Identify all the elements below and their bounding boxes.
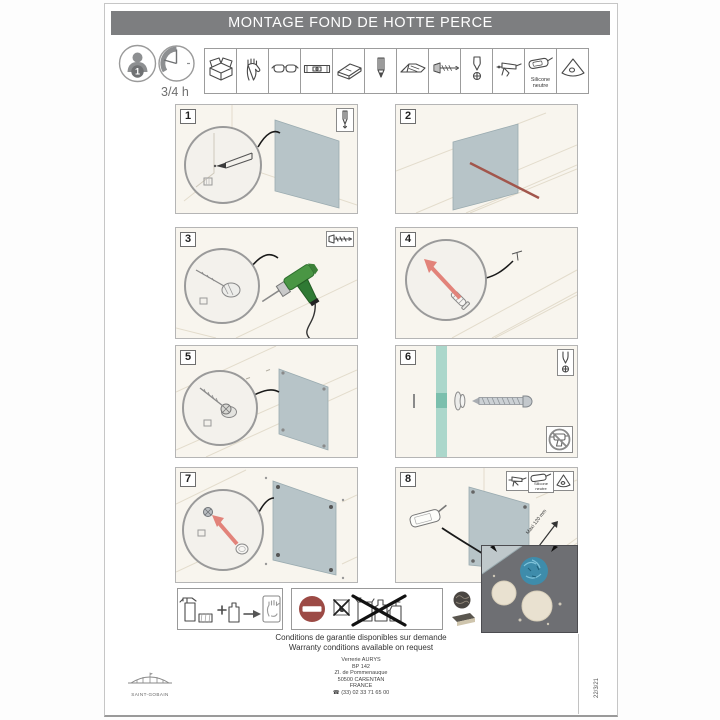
company-street: ZI. de Pommenauque xyxy=(105,670,617,677)
company-phone-line: ☎ (33) 02 33 71 65 00 xyxy=(105,690,617,697)
drill-bit-badge-icon xyxy=(326,231,354,247)
bottle-icon xyxy=(229,603,239,622)
pencil-icon xyxy=(367,55,395,88)
step-panel-4: 4 xyxy=(395,227,578,339)
step2-scene-mark-panel xyxy=(396,105,577,213)
drill-bit-icon xyxy=(431,55,459,88)
screwdriver-badge-icon xyxy=(557,349,574,376)
step-number: 5 xyxy=(180,350,196,365)
step8-tool-badges: Silicone neutre xyxy=(507,471,574,493)
step-panel-7: 7 xyxy=(175,467,358,583)
clock-icon xyxy=(157,44,196,88)
step-number: 8 xyxy=(400,472,416,487)
steel-wool-icon xyxy=(454,592,471,609)
company-city: 50500 CARENTAN xyxy=(105,677,617,684)
company-name: Verrerie AURYS xyxy=(105,657,617,664)
tool-cell xyxy=(204,48,237,94)
company-po-box: BP 142 xyxy=(105,664,617,671)
scouring-pad-icon xyxy=(452,613,475,626)
smoothing-triangle-icon xyxy=(559,55,587,88)
safety-glasses-icon xyxy=(271,55,299,88)
people-count: 1 xyxy=(135,67,140,77)
soft-cloth-hand-icon xyxy=(263,596,280,622)
tool-cell: Silicone neutre xyxy=(524,48,557,94)
one-person-icon: 1 xyxy=(118,44,157,88)
company-country: FRANCE xyxy=(105,683,617,690)
step-number: 7 xyxy=(180,472,196,487)
brand-name: SAINT-GOBAIN xyxy=(119,692,181,697)
step-number: 3 xyxy=(180,232,196,247)
flammable-crossed-icon xyxy=(334,600,349,615)
instruction-sheet: MONTAGE FOND DE HOTTE PERCE 1 3/4 h xyxy=(104,3,618,717)
tool-cell xyxy=(492,48,525,94)
abrasive-pads-forbidden xyxy=(449,589,477,631)
spirit-level-icon xyxy=(303,55,331,88)
phone-number: (33) 02 33 71 65 00 xyxy=(341,690,389,696)
step4-scene-insert-anchor xyxy=(396,228,577,338)
screwdriver-bit-icon xyxy=(463,55,491,88)
step-panel-6: 6 xyxy=(395,345,578,458)
step-panel-3: 3 xyxy=(175,227,358,339)
bridge-icon xyxy=(126,670,174,687)
title-bar: MONTAGE FOND DE HOTTE PERCE xyxy=(111,11,610,35)
step-panel-1: 1 xyxy=(175,104,358,214)
print-date-code: 22/3/21 xyxy=(594,678,600,698)
saint-gobain-logo: SAINT-GOBAIN xyxy=(119,670,181,697)
tool-strip: Silicone neutre xyxy=(205,48,589,94)
toolbox-icon xyxy=(207,55,235,88)
try-square-icon xyxy=(335,55,363,88)
silicone-dollops-inset-photo xyxy=(481,545,578,633)
step-number: 6 xyxy=(400,350,416,365)
no-entry-icon xyxy=(299,596,325,622)
caulking-gun-badge-icon xyxy=(506,471,529,491)
footer: Conditions de garantie disponibles sur d… xyxy=(105,633,617,697)
tool-cell xyxy=(364,48,397,94)
tool-cell xyxy=(268,48,301,94)
phone-icon: ☎ xyxy=(333,690,340,696)
gloves-icon xyxy=(239,55,267,88)
warranty-line-fr: Conditions de garantie disponibles sur d… xyxy=(105,633,617,643)
pencil-badge-icon xyxy=(336,108,354,132)
page-title: MONTAGE FOND DE HOTTE PERCE xyxy=(228,15,493,31)
badge-silicone-line2: neutre xyxy=(535,487,546,492)
caulking-gun-icon xyxy=(495,55,523,88)
tool-cell xyxy=(428,48,461,94)
tool-cell xyxy=(556,48,589,94)
sponge-icon xyxy=(199,614,212,622)
step1-scene-mark-wall xyxy=(176,105,357,213)
smoothing-triangle-badge-icon xyxy=(553,471,574,491)
spray-cleaner-icon xyxy=(180,598,196,621)
tool-cell xyxy=(332,48,365,94)
silicone-tube-icon xyxy=(527,54,555,77)
cleaning-instructions-box xyxy=(177,588,283,630)
tool-cell xyxy=(460,48,493,94)
utility-knife-icon xyxy=(399,55,427,88)
plus-sign xyxy=(218,606,226,614)
duration-label: 3/4 h xyxy=(161,85,189,99)
silicone-label-line2: neutre xyxy=(533,83,549,89)
step-number: 1 xyxy=(180,109,196,124)
step5-scene-screw-panel xyxy=(176,346,357,457)
footer-divider-rule xyxy=(578,634,579,714)
tool-cell xyxy=(396,48,429,94)
solvent-bottles-crossed-icon xyxy=(353,596,405,625)
warranty-line-en: Warranty conditions available on request xyxy=(105,643,617,653)
arrow-right xyxy=(244,610,261,618)
no-power-drill-icon xyxy=(546,426,573,453)
forbidden-products-box xyxy=(291,588,443,630)
step7-scene-cover-caps xyxy=(176,468,357,582)
step-panel-2: 2 xyxy=(395,104,578,214)
step-number: 4 xyxy=(400,232,416,247)
silicone-tube-badge-icon: Silicone neutre xyxy=(528,471,554,493)
step-panel-5: 5 xyxy=(175,345,358,458)
step-number: 2 xyxy=(400,109,416,124)
tool-cell xyxy=(300,48,333,94)
tool-cell xyxy=(236,48,269,94)
